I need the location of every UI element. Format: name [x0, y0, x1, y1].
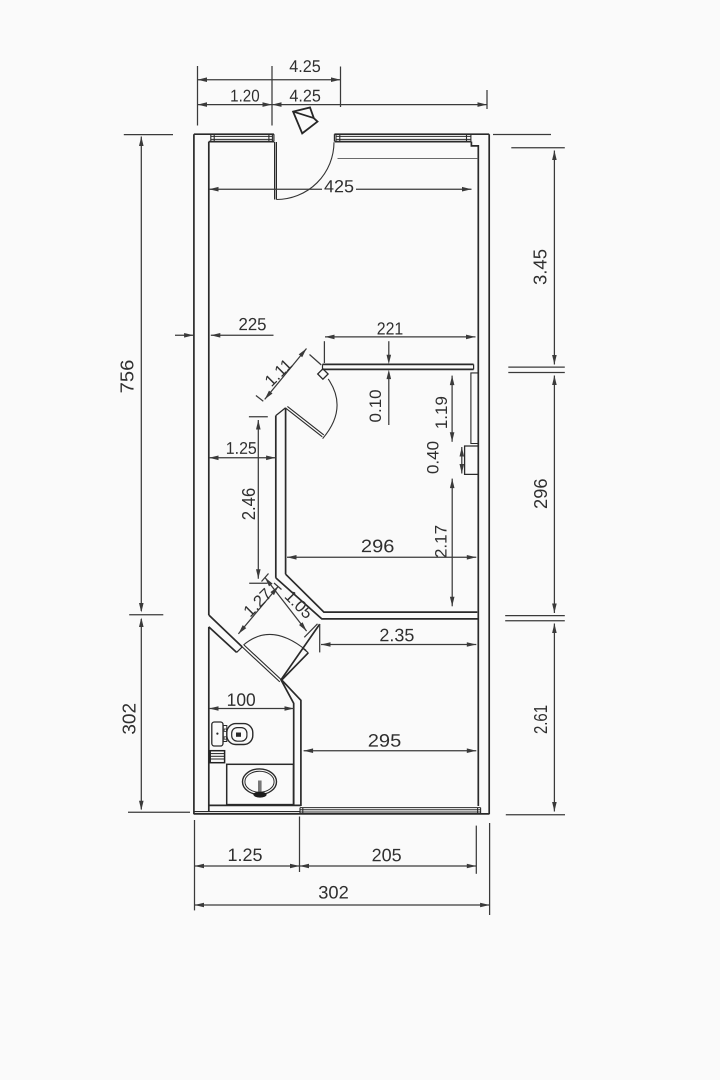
- svg-text:2.46: 2.46: [239, 488, 259, 521]
- svg-text:3.45: 3.45: [531, 249, 551, 285]
- svg-text:4.25: 4.25: [289, 57, 321, 76]
- svg-text:100: 100: [227, 690, 256, 710]
- svg-text:225: 225: [238, 314, 266, 334]
- svg-text:425: 425: [324, 176, 354, 196]
- svg-text:2.35: 2.35: [379, 625, 414, 645]
- svg-text:4.25: 4.25: [289, 86, 321, 105]
- svg-text:296: 296: [531, 478, 551, 509]
- svg-text:296: 296: [361, 536, 395, 556]
- svg-text:295: 295: [368, 731, 402, 751]
- svg-text:1.20: 1.20: [230, 86, 260, 105]
- svg-text:2.17: 2.17: [432, 525, 451, 558]
- svg-text:205: 205: [372, 845, 402, 865]
- svg-text:2.61: 2.61: [531, 705, 551, 734]
- svg-text:1.19: 1.19: [432, 396, 451, 429]
- svg-text:302: 302: [318, 882, 349, 902]
- svg-text:0.10: 0.10: [366, 389, 385, 422]
- svg-text:302: 302: [119, 703, 139, 735]
- svg-text:0.40: 0.40: [424, 441, 443, 474]
- svg-text:756: 756: [117, 360, 137, 394]
- svg-text:1.25: 1.25: [227, 845, 262, 865]
- svg-text:1.25: 1.25: [226, 439, 257, 458]
- svg-text:221: 221: [377, 318, 404, 338]
